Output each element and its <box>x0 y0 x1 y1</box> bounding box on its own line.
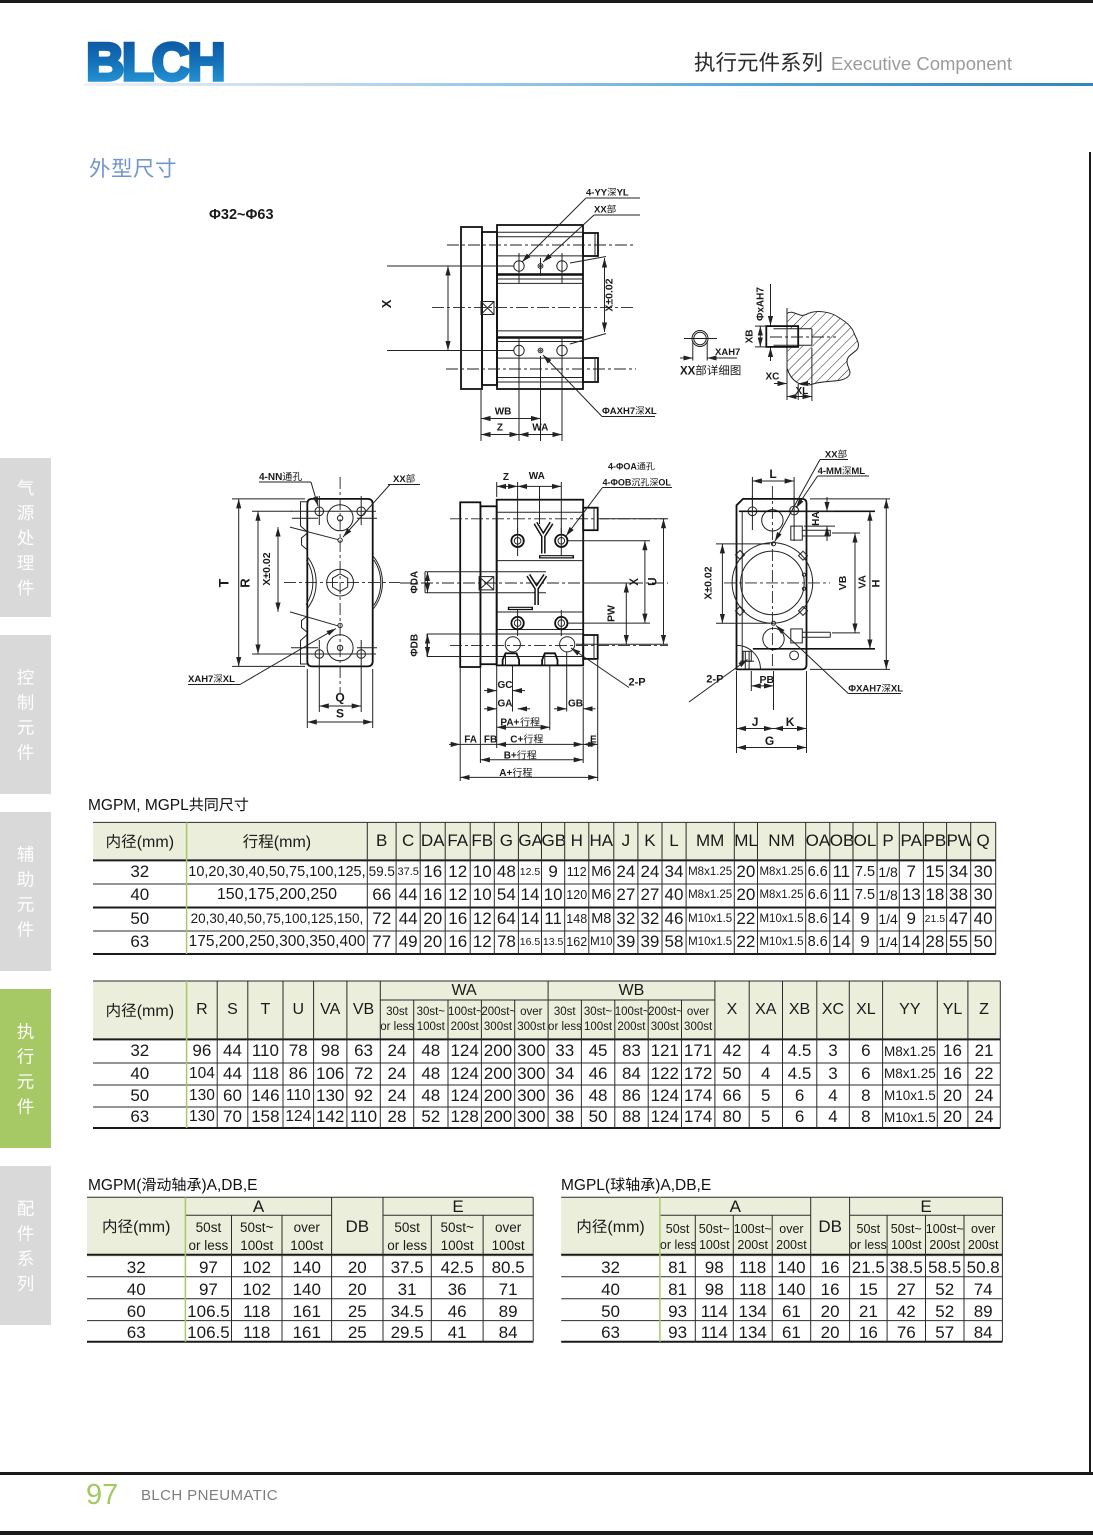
svg-text:XL: XL <box>891 684 903 695</box>
svg-text:)A,DB,E: )A,DB,E <box>202 1177 258 1194</box>
svg-text:X: X <box>379 299 394 308</box>
svg-text:C+: C+ <box>510 735 523 746</box>
svg-text:XL: XL <box>645 406 657 417</box>
svg-text:2-P: 2-P <box>629 677 646 689</box>
svg-text:XX: XX <box>825 450 838 461</box>
svg-text:ΦDB: ΦDB <box>410 634 421 657</box>
svg-text:E: E <box>590 735 597 746</box>
svg-text:(mm): (mm) <box>607 1219 644 1236</box>
svg-text:MGPM, MGPL: MGPM, MGPL <box>88 797 189 814</box>
svg-text:U: U <box>648 577 660 585</box>
svg-text:ML: ML <box>851 466 865 477</box>
svg-text:S: S <box>336 707 344 721</box>
svg-text:OL: OL <box>658 478 671 488</box>
svg-text:4-ΦOB: 4-ΦOB <box>603 478 632 488</box>
svg-text:GB: GB <box>568 699 583 710</box>
svg-text:XX: XX <box>393 474 406 485</box>
svg-text:Q: Q <box>335 691 344 705</box>
svg-text:)A,DB,E: )A,DB,E <box>655 1177 711 1194</box>
svg-text:Z: Z <box>503 472 509 483</box>
svg-text:4-YY: 4-YY <box>586 188 608 199</box>
svg-text:MGPL(: MGPL( <box>561 1177 611 1194</box>
svg-text:J: J <box>752 715 759 729</box>
svg-text:Executive Component: Executive Component <box>831 53 1012 74</box>
svg-text:X±0.02: X±0.02 <box>604 278 616 311</box>
svg-text:X: X <box>629 578 641 586</box>
svg-text:XB: XB <box>745 329 756 343</box>
svg-text:XL: XL <box>796 386 809 397</box>
svg-text:XX: XX <box>680 366 696 378</box>
svg-text:(mm): (mm) <box>274 834 311 851</box>
svg-text:ΦXAH7: ΦXAH7 <box>848 684 881 695</box>
svg-text:XAH7: XAH7 <box>188 674 213 685</box>
svg-text:L: L <box>769 467 776 481</box>
svg-text:PW: PW <box>606 605 618 622</box>
svg-text:ΦxAH7: ΦxAH7 <box>756 287 767 321</box>
svg-text:H: H <box>871 580 883 588</box>
svg-text:T: T <box>216 578 232 587</box>
svg-text:GC: GC <box>498 680 513 691</box>
svg-text:(mm): (mm) <box>133 1219 170 1236</box>
svg-text:XL: XL <box>223 674 235 685</box>
svg-text:(mm): (mm) <box>137 834 174 851</box>
svg-text:VB: VB <box>837 575 849 590</box>
svg-text:VA: VA <box>857 575 869 589</box>
svg-text:FA: FA <box>464 735 477 746</box>
svg-text:4-MM: 4-MM <box>818 466 842 477</box>
svg-text:ΦDA: ΦDA <box>410 571 421 594</box>
svg-text:MGPM(: MGPM( <box>88 1177 142 1194</box>
svg-text:HA: HA <box>811 511 822 525</box>
svg-text:XAH7: XAH7 <box>715 347 740 358</box>
svg-text:XX: XX <box>594 205 607 216</box>
svg-text:X±0.02: X±0.02 <box>703 566 715 599</box>
svg-text:Z: Z <box>497 423 503 434</box>
svg-text:R: R <box>238 578 253 588</box>
svg-text:FB: FB <box>484 735 497 746</box>
svg-text:Φ32~Φ63: Φ32~Φ63 <box>209 207 274 223</box>
svg-text:X±0.02: X±0.02 <box>261 552 273 585</box>
svg-text:G: G <box>765 734 774 748</box>
svg-text:K: K <box>786 715 795 729</box>
svg-text:GA: GA <box>498 699 513 710</box>
svg-text:WA: WA <box>532 423 548 434</box>
svg-text:PB: PB <box>760 674 775 686</box>
svg-text:WB: WB <box>495 407 512 418</box>
svg-text:WA: WA <box>529 471 545 482</box>
svg-text:(mm): (mm) <box>137 1003 174 1020</box>
svg-text:4-ΦOA: 4-ΦOA <box>608 462 637 472</box>
svg-text:YL: YL <box>617 188 629 199</box>
svg-text:ΦAXH7: ΦAXH7 <box>602 406 635 417</box>
svg-text:XC: XC <box>766 372 780 383</box>
svg-text:4-NN: 4-NN <box>259 472 282 483</box>
